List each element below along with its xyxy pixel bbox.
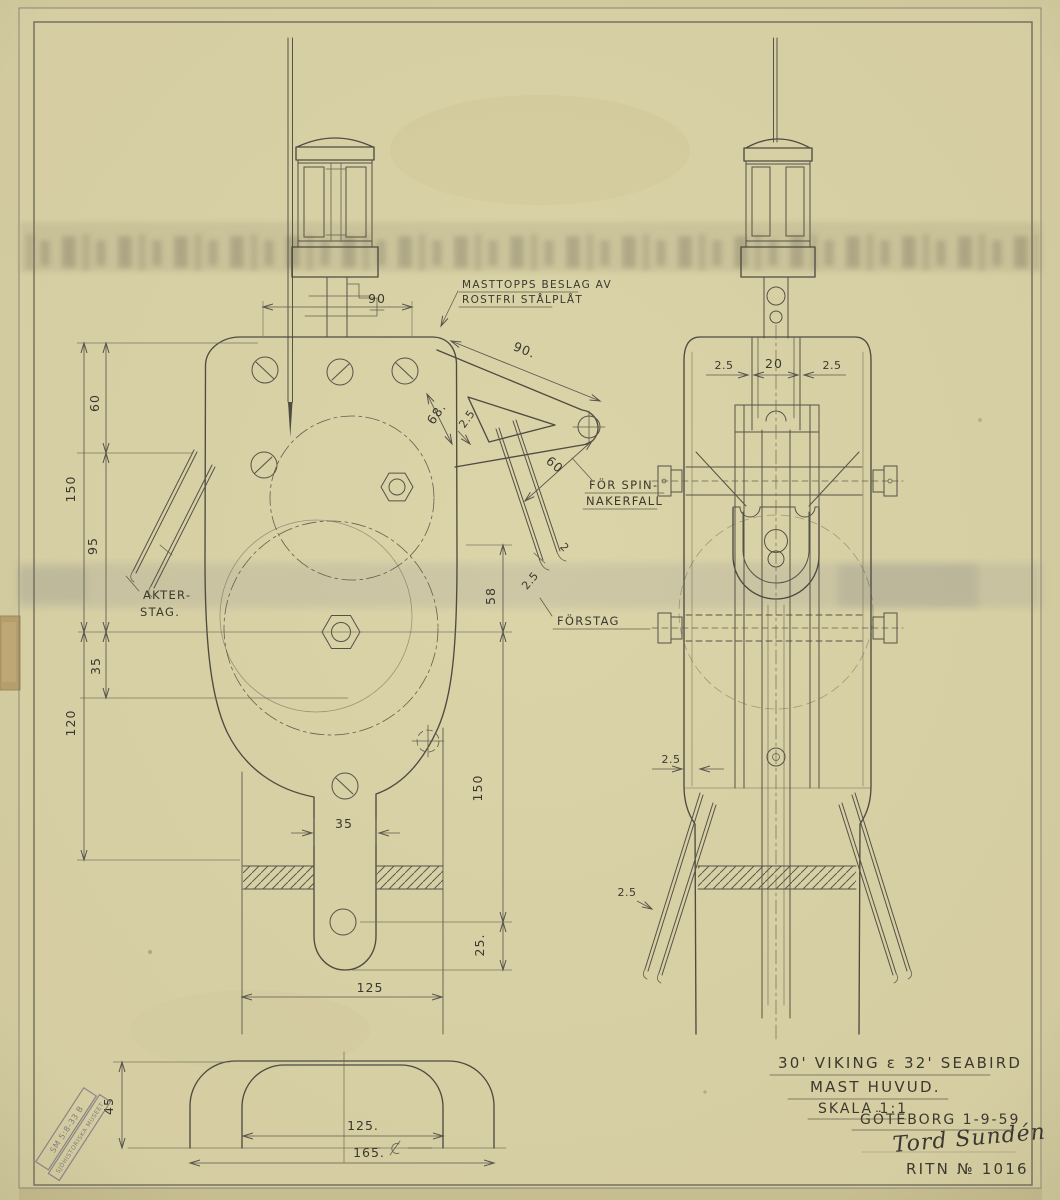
dim-left-overall-lower: 120 — [63, 710, 78, 737]
dim-side-stay: 2.5 — [618, 886, 637, 899]
dim-side-flange-right: 2.5 — [823, 359, 842, 372]
dim-left-small: 35 — [88, 657, 103, 675]
dim-strap-end: 25. — [472, 934, 487, 957]
masthead-note-line1: MASTTOPPS BESLAG AV — [462, 279, 612, 291]
blueprint-sheet: 90 60 150 95 35 120 90. 68. 2.5 60 2 2.5… — [0, 0, 1060, 1200]
title-drawing-number: RITN № 1016 — [906, 1160, 1029, 1178]
masthead-note-line2: ROSTFRI STÅLPLÅT — [462, 293, 583, 306]
dim-strap-length: 150 — [470, 775, 485, 802]
dim-head-width: 90 — [368, 291, 386, 306]
dim-side-slot: 20 — [765, 356, 783, 371]
dim-left-upper: 60 — [87, 394, 102, 412]
blueprint-canvas: 90 60 150 95 35 120 90. 68. 2.5 60 2 2.5… — [0, 0, 1060, 1200]
dim-strap-width: 35 — [335, 816, 353, 831]
dim-left-overall-upper: 150 — [63, 476, 78, 503]
spinnaker-note-line1: FÖR SPIN- — [589, 476, 658, 492]
dim-side-flange-left: 2.5 — [715, 359, 734, 372]
dim-left-mid: 95 — [85, 537, 100, 555]
forstag-label: FÖRSTAG — [557, 612, 620, 628]
spinnaker-note-line2: NAKERFALL — [586, 494, 663, 508]
dim-mast-width: 125 — [357, 980, 384, 995]
dim-sheave-center: 58 — [483, 587, 498, 605]
title-drawing-title: MAST HUVUD. — [810, 1078, 941, 1096]
dim-side-wall: 2.5 — [662, 753, 681, 766]
title-boats: 30' VIKING ε 32' SEABIRD — [778, 1054, 1022, 1072]
dim-plan-inner-width: 125. — [347, 1118, 379, 1133]
mast-section-hatch-side — [698, 866, 856, 889]
akterstag-label-line1: AKTER- — [143, 588, 191, 602]
dim-plan-outer-width: 165. — [353, 1145, 385, 1160]
akterstag-label-line2: STAG. — [140, 605, 180, 619]
